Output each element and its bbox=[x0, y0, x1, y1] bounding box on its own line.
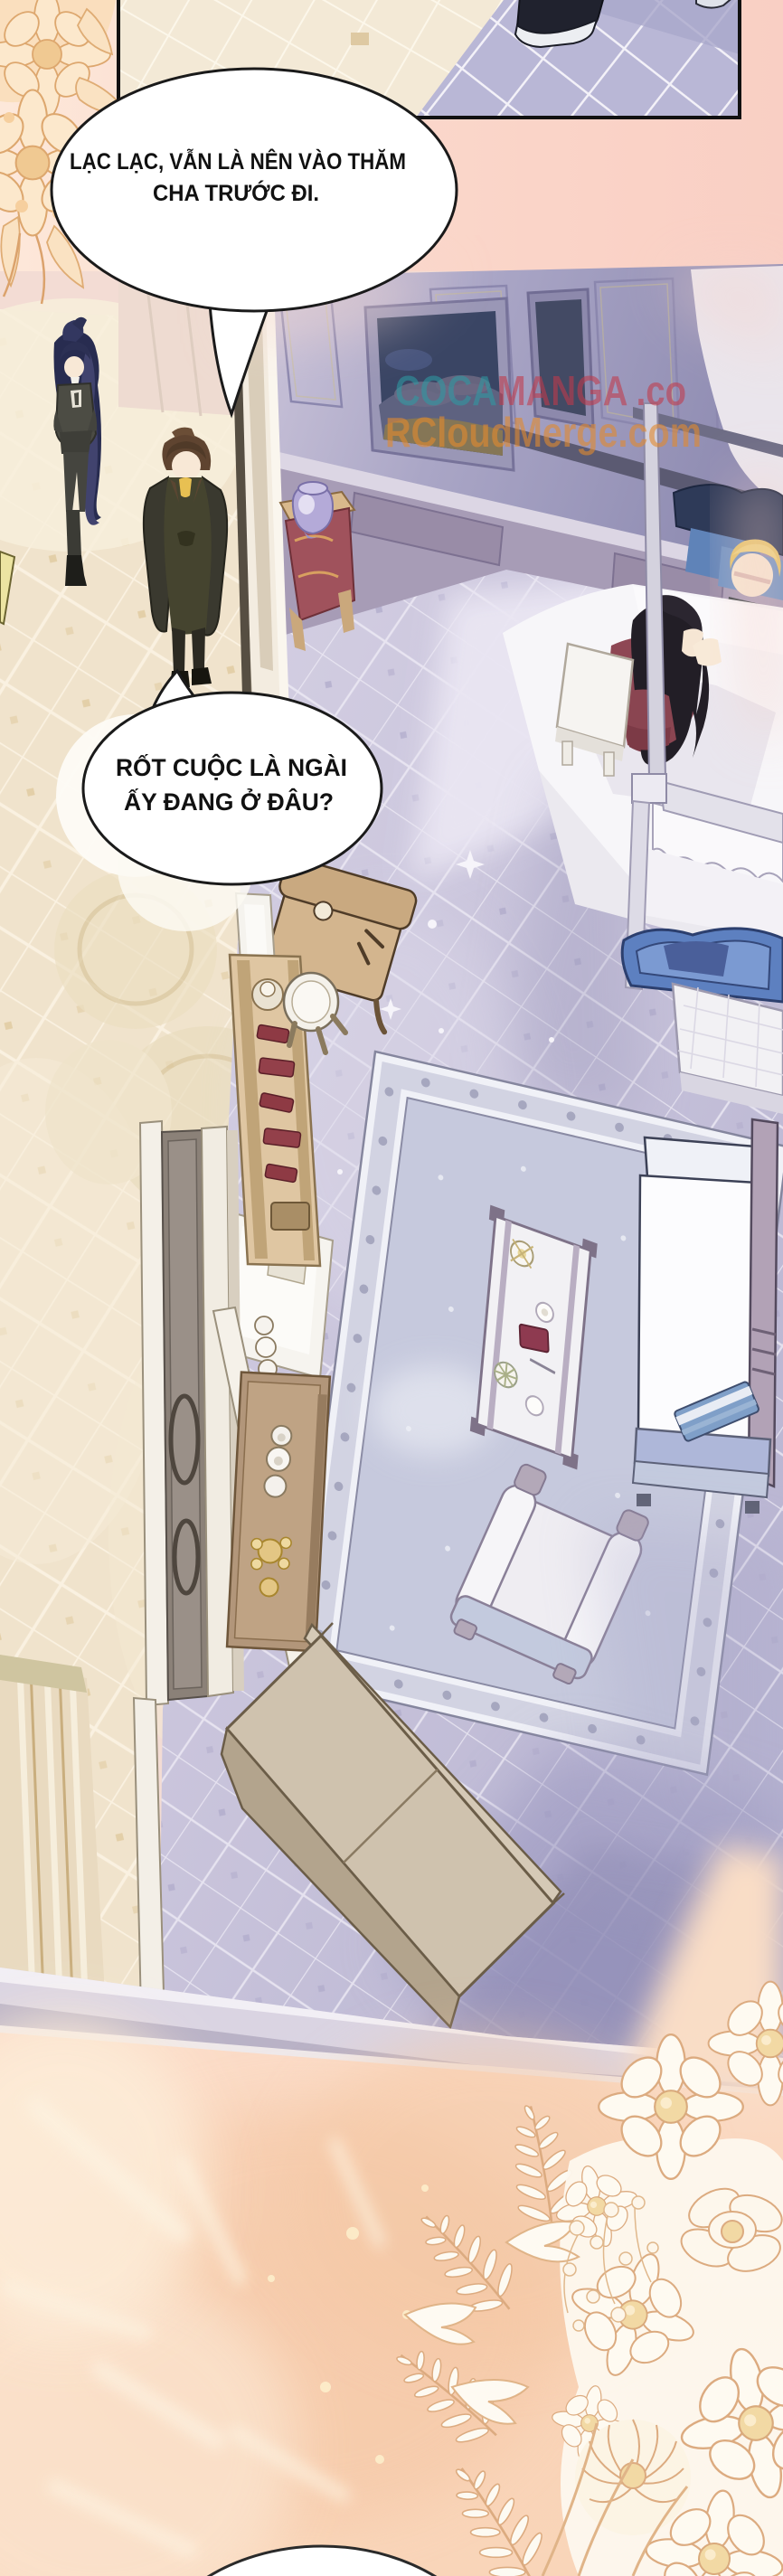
svg-text:CHA TRƯỚC ĐI.: CHA TRƯỚC ĐI. bbox=[153, 179, 319, 206]
svg-text:RỐT CUỘC LÀ NGÀI: RỐT CUỘC LÀ NGÀI bbox=[116, 752, 347, 781]
svg-text:COCAMANGA .co: COCAMANGA .co bbox=[395, 367, 686, 414]
svg-text:RCloudMerge.com: RCloudMerge.com bbox=[385, 409, 702, 456]
svg-text:LẠC LẠC, VẪN LÀ NÊN VÀO THĂM: LẠC LẠC, VẪN LÀ NÊN VÀO THĂM bbox=[70, 147, 406, 175]
svg-text:ẤY ĐANG Ở ĐÂU?: ẤY ĐANG Ở ĐÂU? bbox=[124, 787, 334, 816]
